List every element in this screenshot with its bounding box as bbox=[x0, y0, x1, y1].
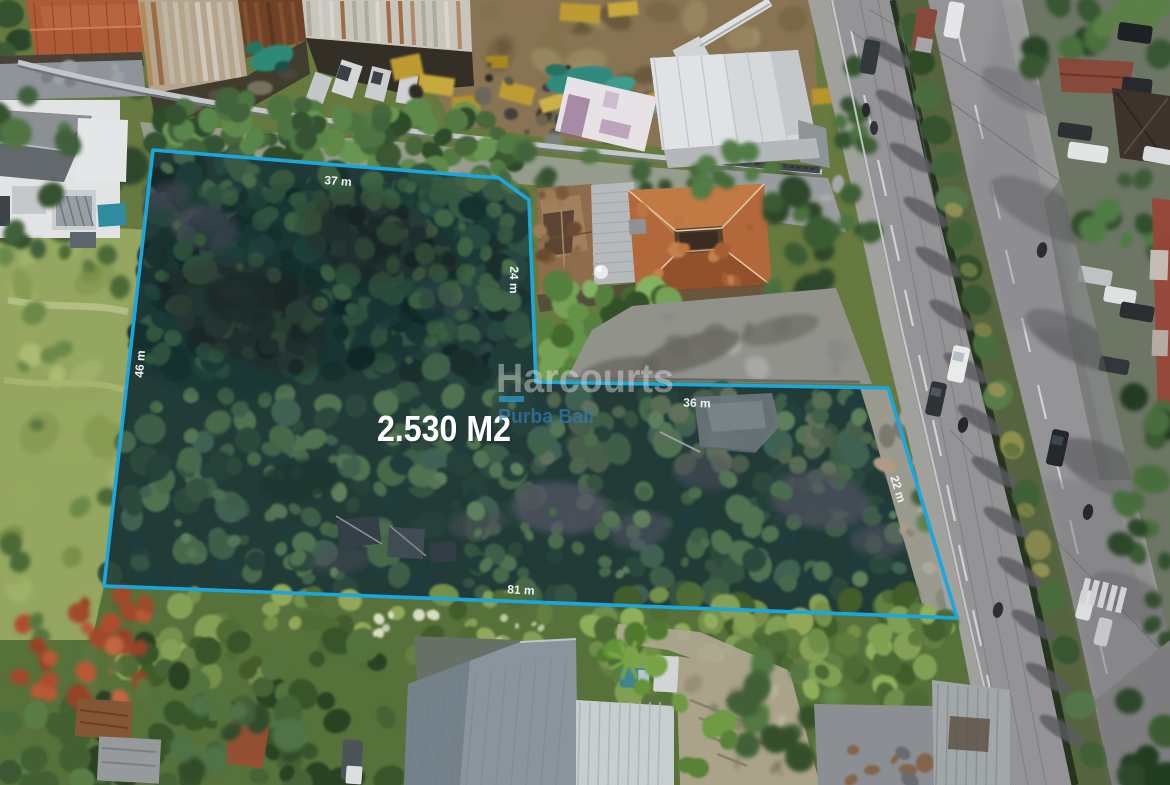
svg-text:36 m: 36 m bbox=[683, 396, 711, 411]
svg-text:Harcourts: Harcourts bbox=[496, 355, 674, 401]
svg-text:46 m: 46 m bbox=[132, 350, 148, 378]
svg-text:Purba Bali: Purba Bali bbox=[498, 406, 594, 428]
svg-text:2.530 M2: 2.530 M2 bbox=[377, 408, 511, 449]
svg-text:37 m: 37 m bbox=[324, 173, 352, 189]
svg-text:81 m: 81 m bbox=[507, 582, 535, 597]
svg-text:24 m: 24 m bbox=[507, 266, 521, 294]
